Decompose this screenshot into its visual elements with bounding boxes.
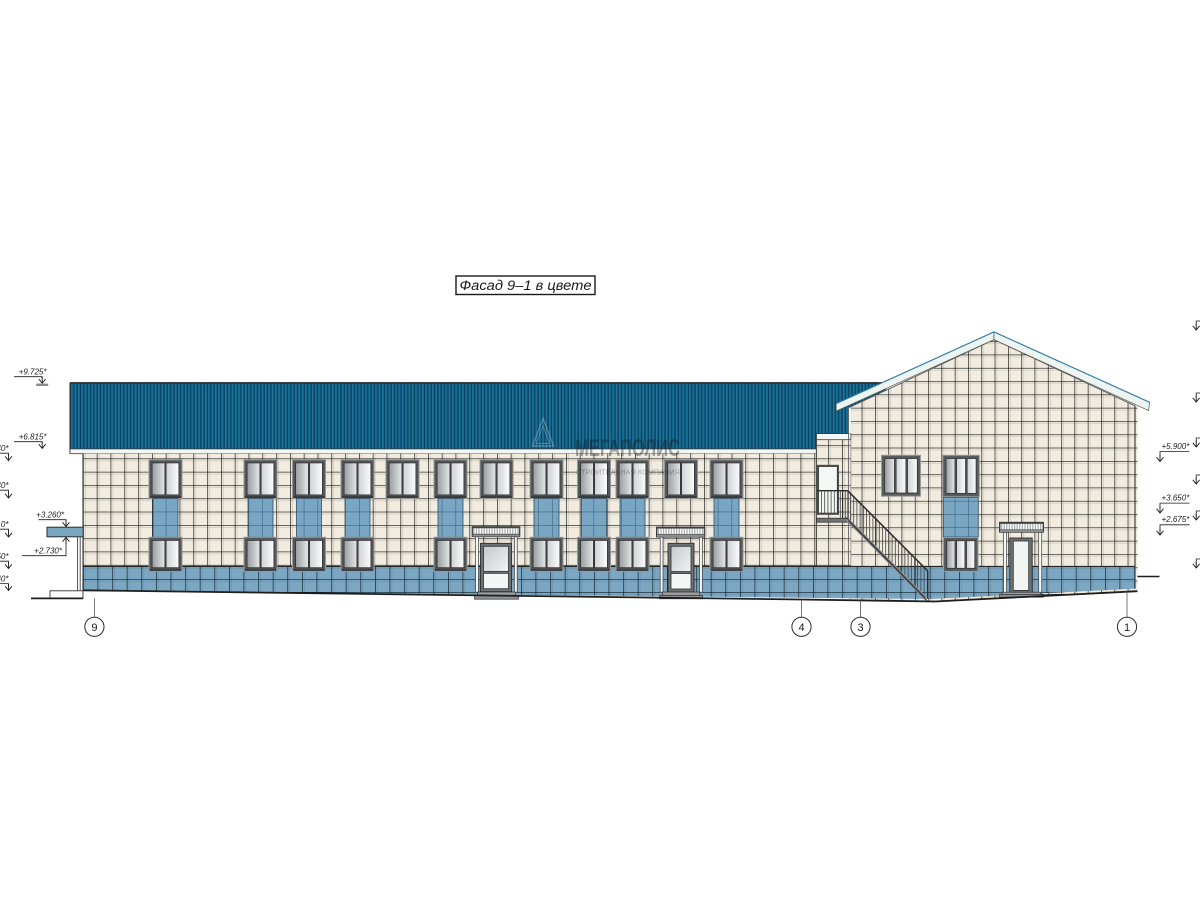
svg-text:+2.675*: +2.675* xyxy=(1162,515,1191,524)
svg-text:+2.730*: +2.730* xyxy=(34,547,63,556)
svg-text:10*: 10* xyxy=(0,520,9,529)
svg-text:+3.260*: +3.260* xyxy=(36,511,65,520)
svg-text:СТРОИТЕЛЬНАЯ КОМПАНИЯ: СТРОИТЕЛЬНАЯ КОМПАНИЯ xyxy=(576,470,680,477)
svg-text:+9.725*: +9.725* xyxy=(19,368,48,377)
svg-text:40*: 40* xyxy=(0,444,9,453)
svg-text:+5.900*: +5.900* xyxy=(1162,442,1191,451)
svg-text:40*: 40* xyxy=(0,481,9,490)
svg-text:9: 9 xyxy=(91,622,97,634)
svg-text:МЕГАПОЛИС: МЕГАПОЛИС xyxy=(575,435,680,462)
svg-text:Фасад 9–1 в цвете: Фасад 9–1 в цвете xyxy=(460,278,592,293)
svg-text:3: 3 xyxy=(857,622,863,634)
svg-text:+6.815*: +6.815* xyxy=(19,433,48,442)
svg-text:4: 4 xyxy=(798,622,804,634)
svg-text:50*: 50* xyxy=(0,552,9,561)
svg-text:1: 1 xyxy=(1124,622,1130,634)
svg-text:40*: 40* xyxy=(0,574,9,583)
svg-text:+3.650*: +3.650* xyxy=(1162,494,1191,503)
